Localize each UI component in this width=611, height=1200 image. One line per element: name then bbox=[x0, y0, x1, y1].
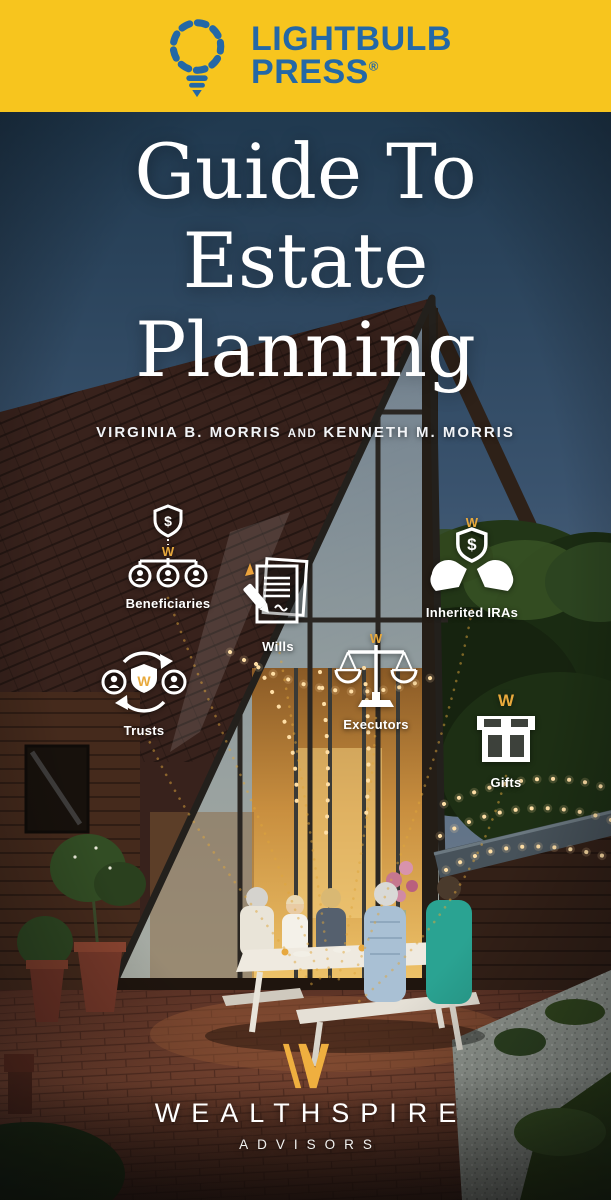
svg-text:W: W bbox=[370, 632, 383, 646]
svg-text:W: W bbox=[498, 692, 515, 710]
wills-icon bbox=[241, 556, 315, 634]
byline-conjunction: AND bbox=[288, 428, 317, 440]
svg-text:$: $ bbox=[164, 513, 172, 529]
topic-label: Inherited IRAs bbox=[426, 605, 518, 620]
topic-executors: W Executors bbox=[334, 632, 418, 732]
author-1: VIRGINIA B. MORRIS bbox=[96, 424, 281, 441]
publisher-name-line1: LIGHTBULB bbox=[251, 23, 452, 56]
publisher-name: LIGHTBULB PRESS® bbox=[251, 23, 452, 90]
gifts-icon: W bbox=[471, 692, 541, 770]
lightbulb-icon bbox=[159, 7, 235, 105]
topic-trusts: W Trusts bbox=[98, 648, 190, 738]
topic-label: Trusts bbox=[124, 723, 165, 738]
svg-text:W: W bbox=[137, 673, 151, 689]
title-line-1: Guide To bbox=[0, 128, 611, 217]
inherited-iras-icon: W $ bbox=[426, 516, 518, 600]
topic-label: Wills bbox=[262, 639, 294, 654]
author-2: KENNETH M. MORRIS bbox=[323, 424, 515, 441]
topic-gifts: W Gifts bbox=[471, 692, 541, 790]
wealthspire-brand: WEALTHSPIRE ADVISORS bbox=[0, 1042, 611, 1152]
beneficiaries-icon: $ W bbox=[125, 503, 211, 591]
publisher-band: LIGHTBULB PRESS® bbox=[0, 0, 611, 112]
byline: VIRGINIA B. MORRIS AND KENNETH M. MORRIS bbox=[0, 424, 611, 441]
page-title: Guide To Estate Planning bbox=[0, 128, 611, 395]
book-cover: LIGHTBULB PRESS® bbox=[0, 0, 611, 1200]
executors-icon: W bbox=[334, 632, 418, 712]
svg-text:W: W bbox=[162, 544, 175, 559]
title-line-2: Estate bbox=[0, 217, 611, 306]
topic-label: Gifts bbox=[490, 775, 521, 790]
svg-text:$: $ bbox=[467, 535, 477, 554]
brand-subtitle: ADVISORS bbox=[230, 1137, 381, 1152]
topic-beneficiaries: $ W Beneficiaries bbox=[125, 503, 211, 611]
topic-label: Executors bbox=[343, 717, 409, 732]
title-line-3: Planning bbox=[0, 306, 611, 395]
topic-inherited-iras: W $ Inherited IRAs bbox=[426, 516, 518, 620]
publisher-name-line2: PRESS® bbox=[251, 56, 452, 89]
wealthspire-monogram bbox=[275, 1042, 337, 1090]
registered-mark: ® bbox=[369, 59, 379, 74]
brand-name: WEALTHSPIRE bbox=[144, 1098, 468, 1129]
topic-wills: Wills bbox=[241, 556, 315, 654]
topic-label: Beneficiaries bbox=[126, 596, 211, 611]
trusts-icon: W bbox=[98, 648, 190, 718]
